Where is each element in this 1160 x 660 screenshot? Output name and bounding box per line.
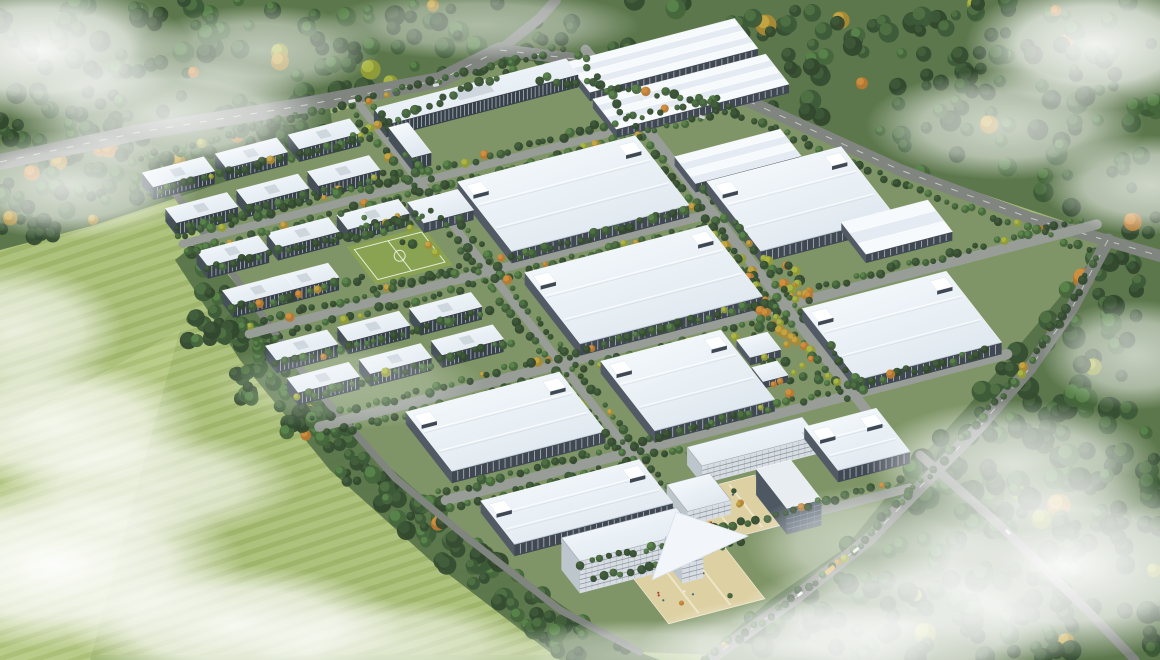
aerial-scene (0, 0, 1160, 660)
atmosphere-veil (0, 0, 1160, 660)
rendering-canvas (0, 0, 1160, 660)
haze-clouds (0, 0, 1160, 660)
